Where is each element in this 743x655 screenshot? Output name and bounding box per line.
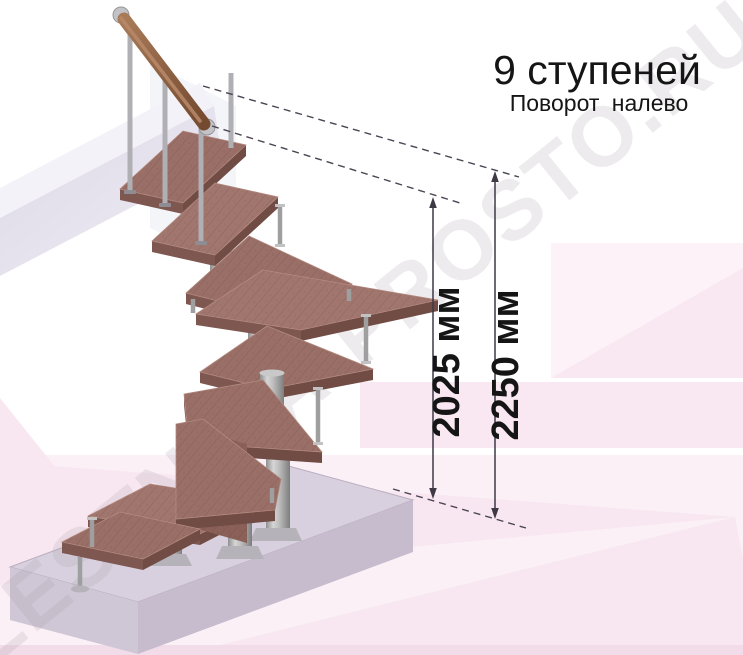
post-flange (361, 361, 371, 364)
baluster-foot (159, 203, 171, 207)
post-base (71, 586, 89, 593)
post-flange (313, 442, 323, 445)
baluster-foot (124, 190, 136, 194)
column-base-plate (250, 528, 302, 541)
column-base-plate (216, 546, 264, 559)
post-flange (361, 314, 371, 317)
caption: 9 ступеней Поворот налево (493, 47, 701, 116)
dimension-label-2250: 2250 мм (485, 289, 527, 440)
post-flange (275, 244, 285, 247)
stair-diagram-canvas: LESTNICA-PROSTO.RU (0, 0, 743, 655)
post-flange (275, 204, 285, 207)
page-subtitle: Поворот налево (510, 90, 689, 116)
baluster-foot (195, 241, 207, 245)
stair-diagram-page: LESTNICA-PROSTO.RU (0, 0, 743, 655)
column-collar (260, 370, 285, 377)
pink-facet (360, 382, 743, 448)
dimension-label-2025: 2025 мм (426, 286, 468, 437)
post-flange (313, 387, 323, 390)
page-title: 9 ступеней (493, 47, 701, 93)
post-flange (87, 517, 97, 520)
